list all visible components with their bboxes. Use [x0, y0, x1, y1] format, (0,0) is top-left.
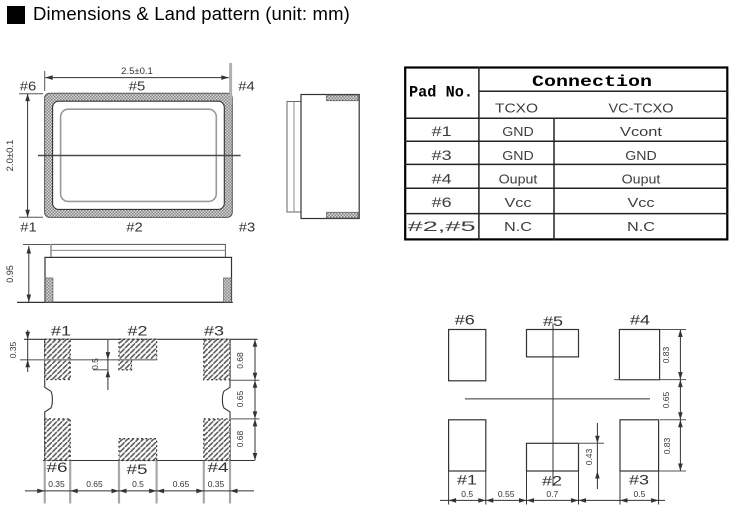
svg-text:0.5: 0.5 — [461, 489, 473, 499]
svg-text:#5: #5 — [129, 79, 146, 94]
svg-text:0.5: 0.5 — [132, 479, 144, 489]
svg-text:0.35: 0.35 — [208, 479, 225, 489]
svg-text:0.83: 0.83 — [662, 437, 672, 454]
svg-text:TCXO: TCXO — [495, 101, 538, 116]
svg-text:#4: #4 — [208, 459, 229, 475]
svg-text:0.95: 0.95 — [5, 265, 15, 283]
svg-text:#5: #5 — [543, 313, 563, 329]
svg-text:0.5: 0.5 — [633, 489, 645, 499]
svg-text:#1: #1 — [51, 323, 71, 339]
svg-text:#3: #3 — [204, 323, 224, 339]
svg-text:2.5±0.1: 2.5±0.1 — [121, 66, 153, 77]
svg-text:0.65: 0.65 — [235, 390, 245, 407]
svg-text:0.7: 0.7 — [546, 489, 558, 499]
svg-text:#4: #4 — [630, 312, 650, 328]
svg-text:0.68: 0.68 — [235, 352, 245, 369]
svg-text:#3: #3 — [629, 472, 649, 488]
svg-text:Vcont: Vcont — [620, 124, 662, 139]
svg-text:#1: #1 — [20, 220, 37, 235]
svg-text:VC-TCXO: VC-TCXO — [609, 101, 674, 116]
svg-text:#6: #6 — [20, 79, 37, 94]
svg-text:#5: #5 — [127, 461, 148, 477]
svg-text:0.83: 0.83 — [661, 346, 671, 363]
svg-text:#3: #3 — [432, 147, 452, 163]
svg-text:#6: #6 — [455, 312, 475, 328]
svg-text:#1: #1 — [457, 472, 477, 488]
svg-text:0.35: 0.35 — [8, 341, 18, 358]
svg-text:0.65: 0.65 — [86, 479, 103, 489]
svg-text:0.68: 0.68 — [235, 430, 245, 447]
svg-text:N.C: N.C — [627, 219, 655, 234]
svg-text:0.43: 0.43 — [584, 448, 594, 465]
svg-text:#1: #1 — [432, 123, 452, 139]
svg-text:Pad No.: Pad No. — [409, 84, 473, 102]
svg-text:Vcc: Vcc — [628, 195, 656, 210]
svg-text:0.65: 0.65 — [661, 391, 671, 408]
svg-text:#4: #4 — [432, 171, 452, 187]
svg-text:Ouput: Ouput — [622, 172, 661, 187]
svg-text:Ouput: Ouput — [499, 172, 538, 187]
svg-text:#4: #4 — [238, 79, 255, 94]
svg-text:0.35: 0.35 — [48, 479, 65, 489]
svg-text:0.5: 0.5 — [90, 358, 100, 370]
svg-text:#3: #3 — [239, 220, 256, 235]
svg-text:Connection: Connection — [532, 73, 652, 91]
svg-text:0.55: 0.55 — [498, 489, 515, 499]
svg-text:#6: #6 — [47, 459, 68, 475]
svg-text:GND: GND — [625, 148, 657, 163]
svg-text:#2: #2 — [126, 220, 143, 235]
svg-text:GND: GND — [502, 124, 534, 139]
svg-text:GND: GND — [502, 148, 534, 163]
svg-text:#2: #2 — [128, 323, 148, 339]
svg-text:0.65: 0.65 — [173, 479, 190, 489]
svg-text:#2,#5: #2,#5 — [408, 218, 476, 234]
svg-text:#2: #2 — [542, 473, 562, 489]
svg-text:N.C: N.C — [504, 219, 532, 234]
svg-text:Vcc: Vcc — [505, 195, 533, 210]
svg-text:2.0±0.1: 2.0±0.1 — [5, 140, 16, 172]
svg-text:#6: #6 — [432, 194, 452, 210]
